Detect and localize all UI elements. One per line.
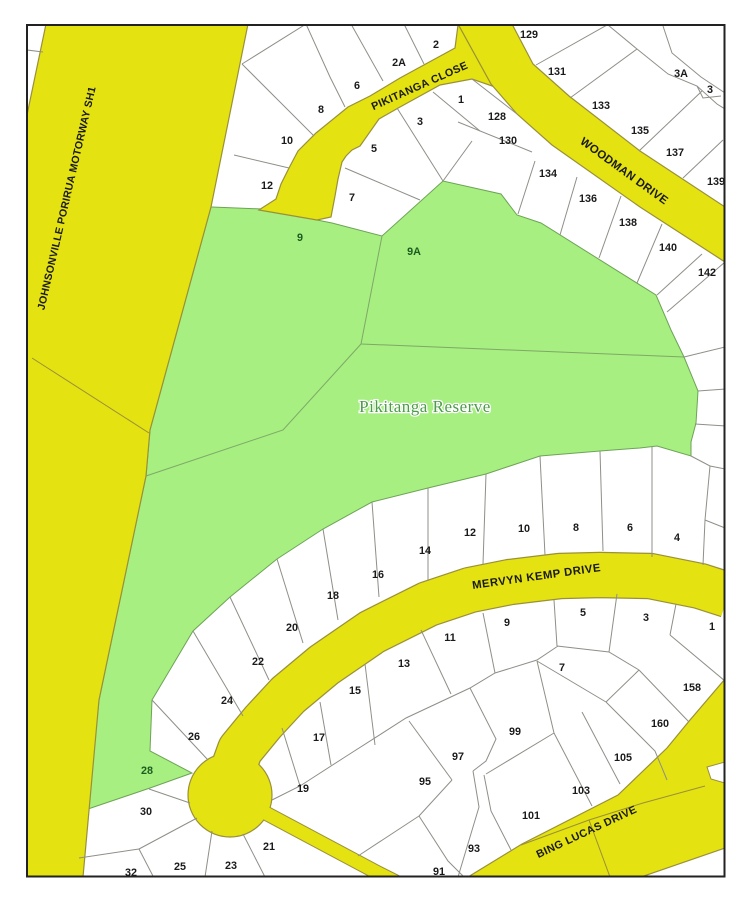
svg-text:2: 2 (433, 39, 439, 51)
svg-text:22: 22 (252, 656, 264, 668)
svg-text:142: 142 (698, 267, 716, 279)
svg-text:140: 140 (659, 242, 677, 254)
svg-text:131: 131 (548, 66, 566, 78)
svg-text:128: 128 (488, 111, 506, 123)
svg-text:133: 133 (592, 100, 610, 112)
svg-text:12: 12 (464, 527, 476, 539)
svg-text:103: 103 (572, 785, 590, 797)
svg-text:23: 23 (225, 860, 237, 872)
svg-text:19: 19 (297, 783, 309, 795)
svg-text:14: 14 (419, 545, 431, 557)
svg-text:16: 16 (372, 569, 384, 581)
svg-text:93: 93 (468, 843, 480, 855)
svg-text:15: 15 (349, 685, 361, 697)
svg-text:11: 11 (444, 632, 455, 644)
svg-text:139: 139 (707, 176, 725, 188)
svg-text:3: 3 (417, 116, 423, 128)
svg-text:129: 129 (520, 29, 538, 41)
svg-text:6: 6 (627, 522, 633, 534)
svg-text:3: 3 (643, 612, 649, 624)
svg-text:101: 101 (522, 810, 540, 822)
svg-text:7: 7 (559, 662, 565, 674)
svg-text:5: 5 (580, 607, 586, 619)
svg-text:3: 3 (707, 84, 713, 96)
svg-text:137: 137 (666, 147, 684, 159)
svg-text:134: 134 (539, 168, 557, 180)
svg-text:138: 138 (619, 217, 637, 229)
svg-text:20: 20 (286, 622, 298, 634)
svg-text:3A: 3A (674, 68, 688, 80)
svg-text:13: 13 (398, 658, 410, 670)
svg-text:Pikitanga Reserve: Pikitanga Reserve (359, 397, 491, 416)
svg-text:10: 10 (518, 523, 530, 535)
svg-text:9: 9 (297, 232, 303, 244)
svg-text:130: 130 (499, 135, 517, 147)
svg-text:25: 25 (174, 861, 186, 873)
svg-text:136: 136 (579, 193, 597, 205)
svg-text:1: 1 (458, 94, 464, 106)
svg-text:26: 26 (188, 731, 200, 743)
svg-text:24: 24 (221, 695, 233, 707)
svg-text:135: 135 (631, 125, 649, 137)
svg-text:158: 158 (683, 682, 701, 694)
svg-text:12: 12 (261, 180, 273, 192)
svg-text:4: 4 (674, 532, 680, 544)
svg-text:30: 30 (140, 806, 152, 818)
svg-text:95: 95 (419, 776, 431, 788)
svg-text:160: 160 (651, 718, 669, 730)
svg-text:1: 1 (709, 621, 715, 633)
svg-text:6: 6 (354, 80, 360, 92)
svg-text:21: 21 (263, 841, 275, 853)
svg-text:8: 8 (318, 104, 324, 116)
svg-text:5: 5 (371, 143, 377, 155)
svg-text:28: 28 (141, 765, 153, 777)
svg-text:105: 105 (614, 752, 632, 764)
svg-text:10: 10 (281, 135, 293, 147)
svg-text:9A: 9A (407, 246, 421, 258)
svg-text:2A: 2A (392, 57, 406, 69)
svg-text:8: 8 (573, 522, 579, 534)
svg-text:9: 9 (504, 617, 510, 629)
svg-text:7: 7 (349, 192, 355, 204)
svg-text:17: 17 (313, 732, 325, 744)
svg-text:97: 97 (452, 751, 464, 763)
svg-text:18: 18 (327, 590, 339, 602)
svg-text:99: 99 (509, 726, 521, 738)
